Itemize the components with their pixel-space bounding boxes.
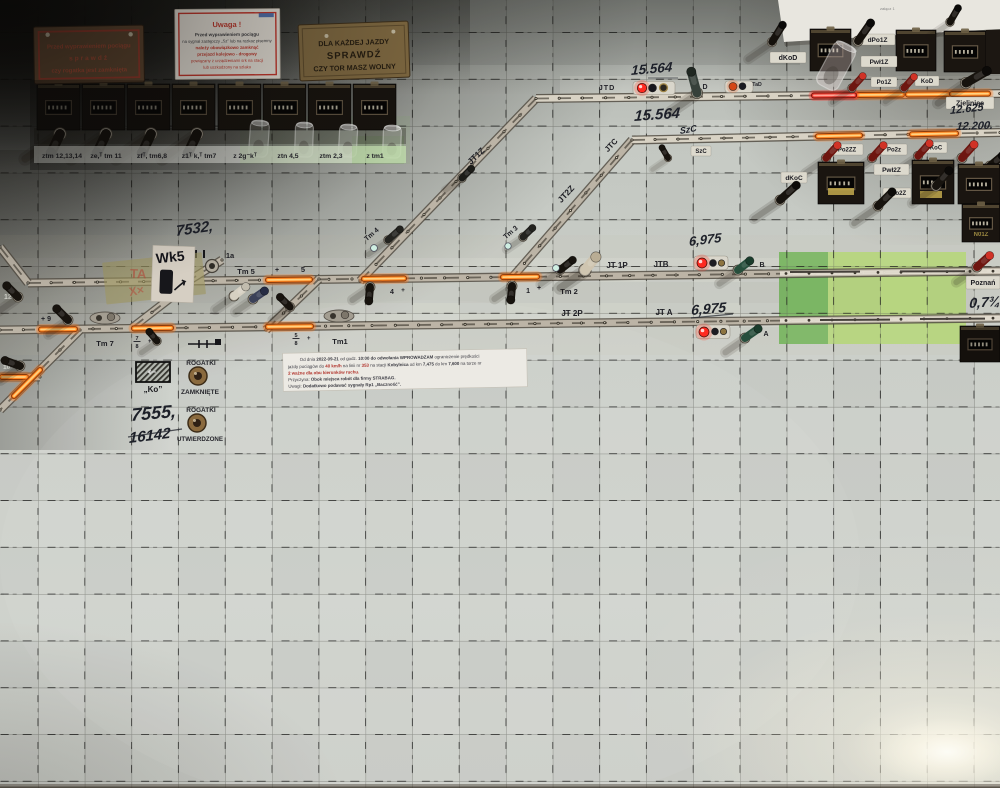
svg-text:8: 8 <box>294 341 297 347</box>
svg-text:dPo1Z: dPo1Z <box>868 37 888 44</box>
svg-text:UTWIERDZONE: UTWIERDZONE <box>177 436 223 443</box>
svg-text:Po2ZZ: Po2ZZ <box>838 148 857 154</box>
svg-text:Tm1: Tm1 <box>332 337 347 346</box>
svg-text:„Ko”: „Ko” <box>144 385 163 394</box>
svg-text:7555,: 7555, <box>131 401 177 425</box>
svg-text:15.564: 15.564 <box>634 105 682 125</box>
svg-text:B: B <box>759 262 764 269</box>
svg-text:TaD: TaD <box>752 82 762 88</box>
svg-text:dKoD: dKoD <box>779 55 798 62</box>
svg-text:Pwł2Z: Pwł2Z <box>882 167 901 174</box>
svg-text:Tm 7: Tm 7 <box>96 339 114 348</box>
svg-text:JT 2P: JT 2P <box>561 309 583 318</box>
svg-text:Po1Z: Po1Z <box>877 80 892 86</box>
svg-text:0,7¾: 0,7¾ <box>969 293 1000 311</box>
svg-text:8: 8 <box>135 344 138 350</box>
svg-text:dKoC: dKoC <box>785 175 803 182</box>
svg-text:12.200.: 12.200. <box>956 120 994 133</box>
svg-text:załącz 1: załącz 1 <box>880 6 895 11</box>
svg-text:Po2z: Po2z <box>887 148 901 154</box>
svg-text:ZAMKNIĘTE: ZAMKNIĘTE <box>181 389 220 396</box>
svg-text:ROGATKI: ROGATKI <box>186 407 216 414</box>
svg-text:JT A: JT A <box>655 308 672 317</box>
svg-text:KoD: KoD <box>921 79 934 85</box>
svg-text:N01Z: N01Z <box>974 232 989 238</box>
svg-text:+: + <box>307 336 311 342</box>
svg-text:JTB: JTB <box>653 260 668 269</box>
svg-text:Pwł1Z: Pwł1Z <box>870 59 889 66</box>
svg-text:+ 9: + 9 <box>41 316 51 323</box>
svg-text:ROGATKI: ROGATKI <box>186 360 216 367</box>
svg-text:JTD: JTD <box>599 83 616 92</box>
svg-text:SzC: SzC <box>695 149 707 155</box>
svg-text:D: D <box>702 84 707 91</box>
svg-text:A: A <box>763 331 768 338</box>
svg-text:Poznań: Poznań <box>971 280 996 287</box>
svg-text:JT 1P: JT 1P <box>606 261 628 270</box>
svg-text:1: 1 <box>526 288 530 295</box>
